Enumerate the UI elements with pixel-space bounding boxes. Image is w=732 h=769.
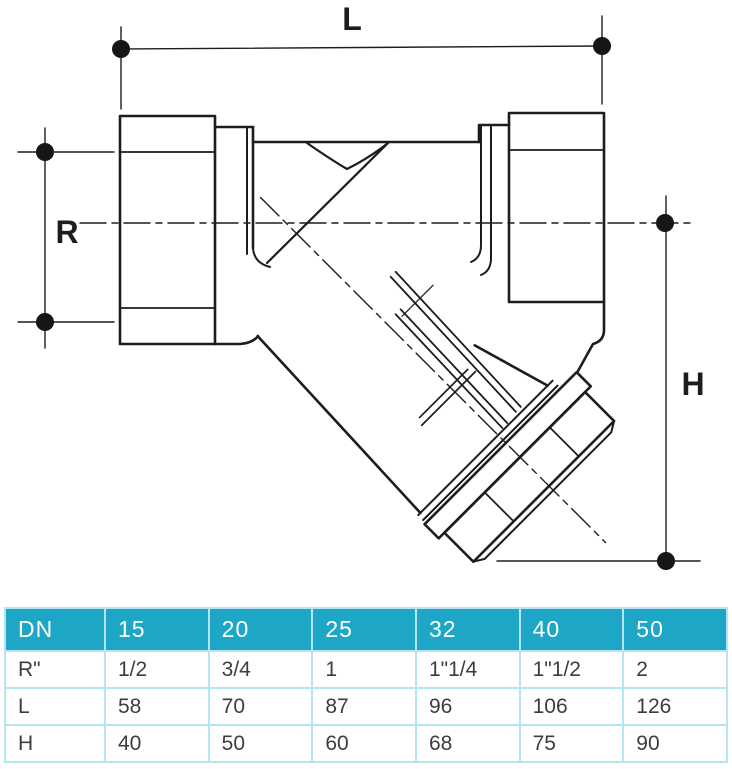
branch-tube-lower-edge — [251, 336, 428, 513]
spec-value: 96 — [416, 688, 520, 725]
row-label: R" — [5, 651, 105, 688]
spec-value: 40 — [105, 725, 209, 762]
left-port-nut — [120, 116, 215, 344]
dimension-l: L — [112, 1, 611, 109]
spec-value: 1"1/2 — [520, 651, 624, 688]
dim-dot — [656, 214, 674, 232]
column-header: 15 — [105, 608, 209, 651]
dimension-r: R — [18, 128, 114, 348]
spec-value: 70 — [209, 688, 313, 725]
strainer-screen-lines — [371, 260, 539, 428]
spec-value: 50 — [209, 725, 313, 762]
table-row-thread: R" 1/2 3/4 1 1"1/4 1"1/2 2 — [5, 651, 727, 688]
column-header-dn: DN — [5, 608, 105, 651]
dim-dot — [657, 552, 675, 570]
right-port-nut — [509, 113, 604, 302]
dimension-label-l: L — [342, 1, 362, 37]
column-header: 50 — [623, 608, 727, 651]
left-collar — [215, 127, 270, 267]
spec-value: 1/2 — [105, 651, 209, 688]
spec-value: 60 — [312, 725, 416, 762]
dim-dot — [593, 37, 611, 55]
table-row-height: H 40 50 60 68 75 90 — [5, 725, 727, 762]
spec-value: 1"1/4 — [416, 651, 520, 688]
dimension-h: H — [497, 196, 705, 570]
spec-value: 2 — [623, 651, 727, 688]
spec-table: DN 15 20 25 32 40 50 R" 1/2 3/4 1 1"1/4 … — [4, 607, 728, 763]
body-shell — [215, 125, 509, 344]
spec-value: 106 — [520, 688, 624, 725]
spec-value: 58 — [105, 688, 209, 725]
strainer-cap — [425, 372, 624, 571]
table-header-row: DN 15 20 25 32 40 50 — [5, 608, 727, 651]
table-row-length: L 58 70 87 96 106 126 — [5, 688, 727, 725]
column-header: 40 — [520, 608, 624, 651]
dim-dot — [112, 40, 130, 58]
spec-value: 1 — [312, 651, 416, 688]
column-header: 32 — [416, 608, 520, 651]
dim-dot — [36, 143, 54, 161]
spec-value: 68 — [416, 725, 520, 762]
dim-dot — [36, 313, 54, 331]
spec-value: 3/4 — [209, 651, 313, 688]
spec-value: 90 — [623, 725, 727, 762]
column-header: 20 — [209, 608, 313, 651]
right-collar — [471, 125, 491, 275]
column-header: 25 — [312, 608, 416, 651]
seat-ring-lines — [370, 333, 557, 520]
branch-tube-upper-edge — [475, 329, 548, 402]
row-label: H — [5, 725, 105, 762]
valve-body — [120, 113, 604, 371]
right-branch-transition — [578, 302, 604, 371]
dimension-label-h: H — [681, 366, 704, 402]
dimension-label-r: R — [55, 214, 78, 250]
spec-value: 126 — [623, 688, 727, 725]
spec-value: 87 — [312, 688, 416, 725]
row-label: L — [5, 688, 105, 725]
technical-drawing: L R H — [0, 0, 732, 602]
spec-value: 75 — [520, 725, 624, 762]
